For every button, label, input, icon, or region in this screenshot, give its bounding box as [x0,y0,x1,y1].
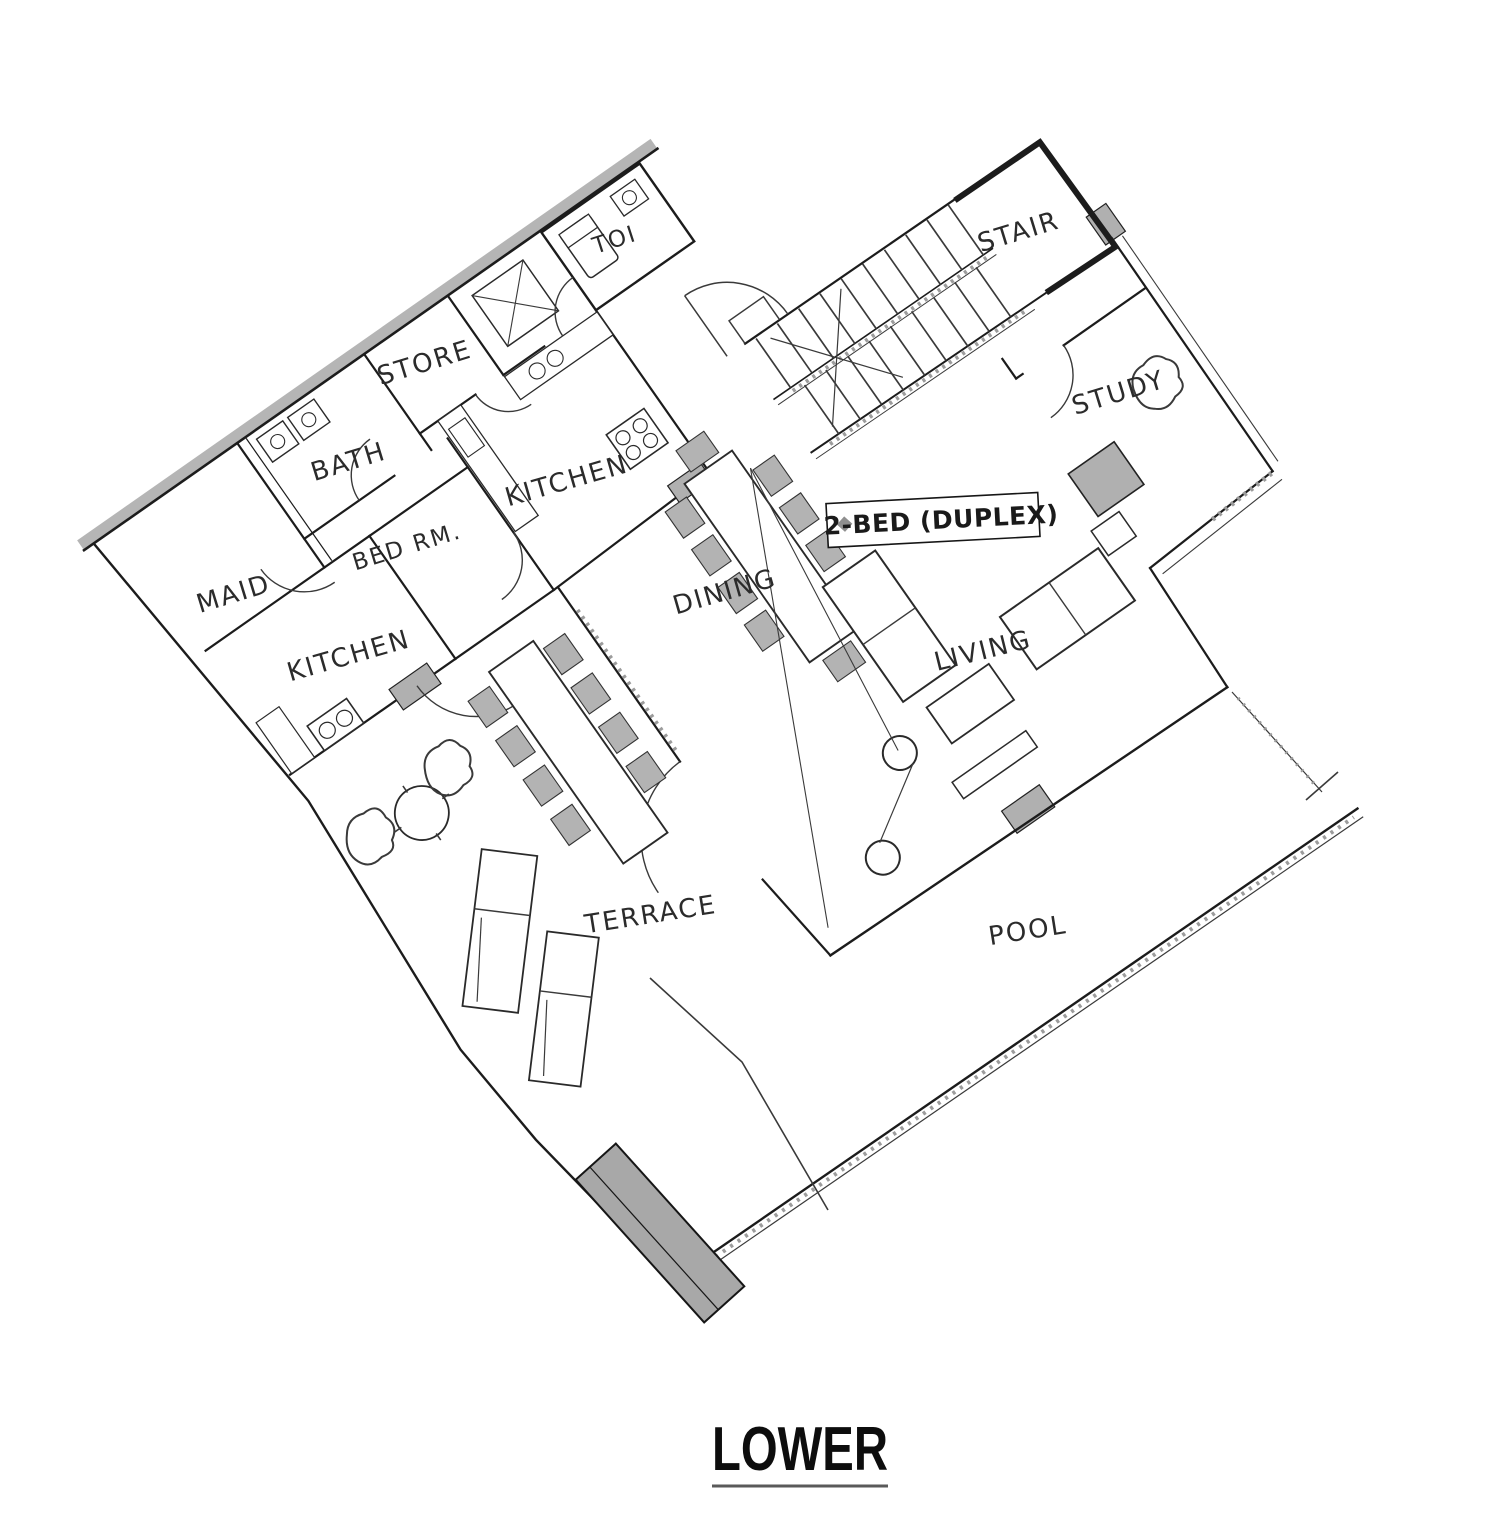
floor-plan-page: TOI STORE BATH KITCHEN BED RM. MAID KITC… [0,0,1500,1529]
bedroom-door-arc [417,644,517,744]
room-label-maid-kitchen: KITCHEN [284,624,414,688]
sun-lounger-icon [462,849,537,1013]
room-label-kitchen: KITCHEN [502,449,632,513]
plan-title: LOWER [712,1415,888,1486]
pool-edge [701,804,1363,1274]
room-label-bed-rm: BED RM. [349,518,464,576]
entry-door [685,253,788,356]
floor-plan-drawing: TOI STORE BATH KITCHEN BED RM. MAID KITC… [0,0,1500,1529]
staircase [723,161,1053,462]
title-text: LOWER [712,1415,888,1484]
column-icon [876,729,923,776]
boundary-tick-line [1232,692,1338,800]
room-label-study: STUDY [1068,365,1168,422]
unit-tag: 2-BED (DUPLEX) [823,491,1060,547]
sun-lounger-icon [529,931,599,1086]
hall-door-arc [474,533,541,600]
shaded-pier [1068,442,1144,517]
room-label-stair: STAIR [974,206,1063,259]
column-icon [859,834,906,881]
room-label-terrace: TERRACE [582,890,719,941]
shower-box-icon [472,260,558,346]
maid-counter [256,707,314,774]
pool-divider-wall [650,978,828,1210]
shaded-pier [576,1144,745,1323]
room-label-bath: BATH [307,437,389,488]
maid-stove-icon [307,698,364,750]
room-label-pool: POOL [986,910,1069,952]
room-label-store: STORE [374,335,476,392]
console-icon [952,731,1037,799]
dining-table [640,406,902,707]
round-table-icon [384,775,459,850]
